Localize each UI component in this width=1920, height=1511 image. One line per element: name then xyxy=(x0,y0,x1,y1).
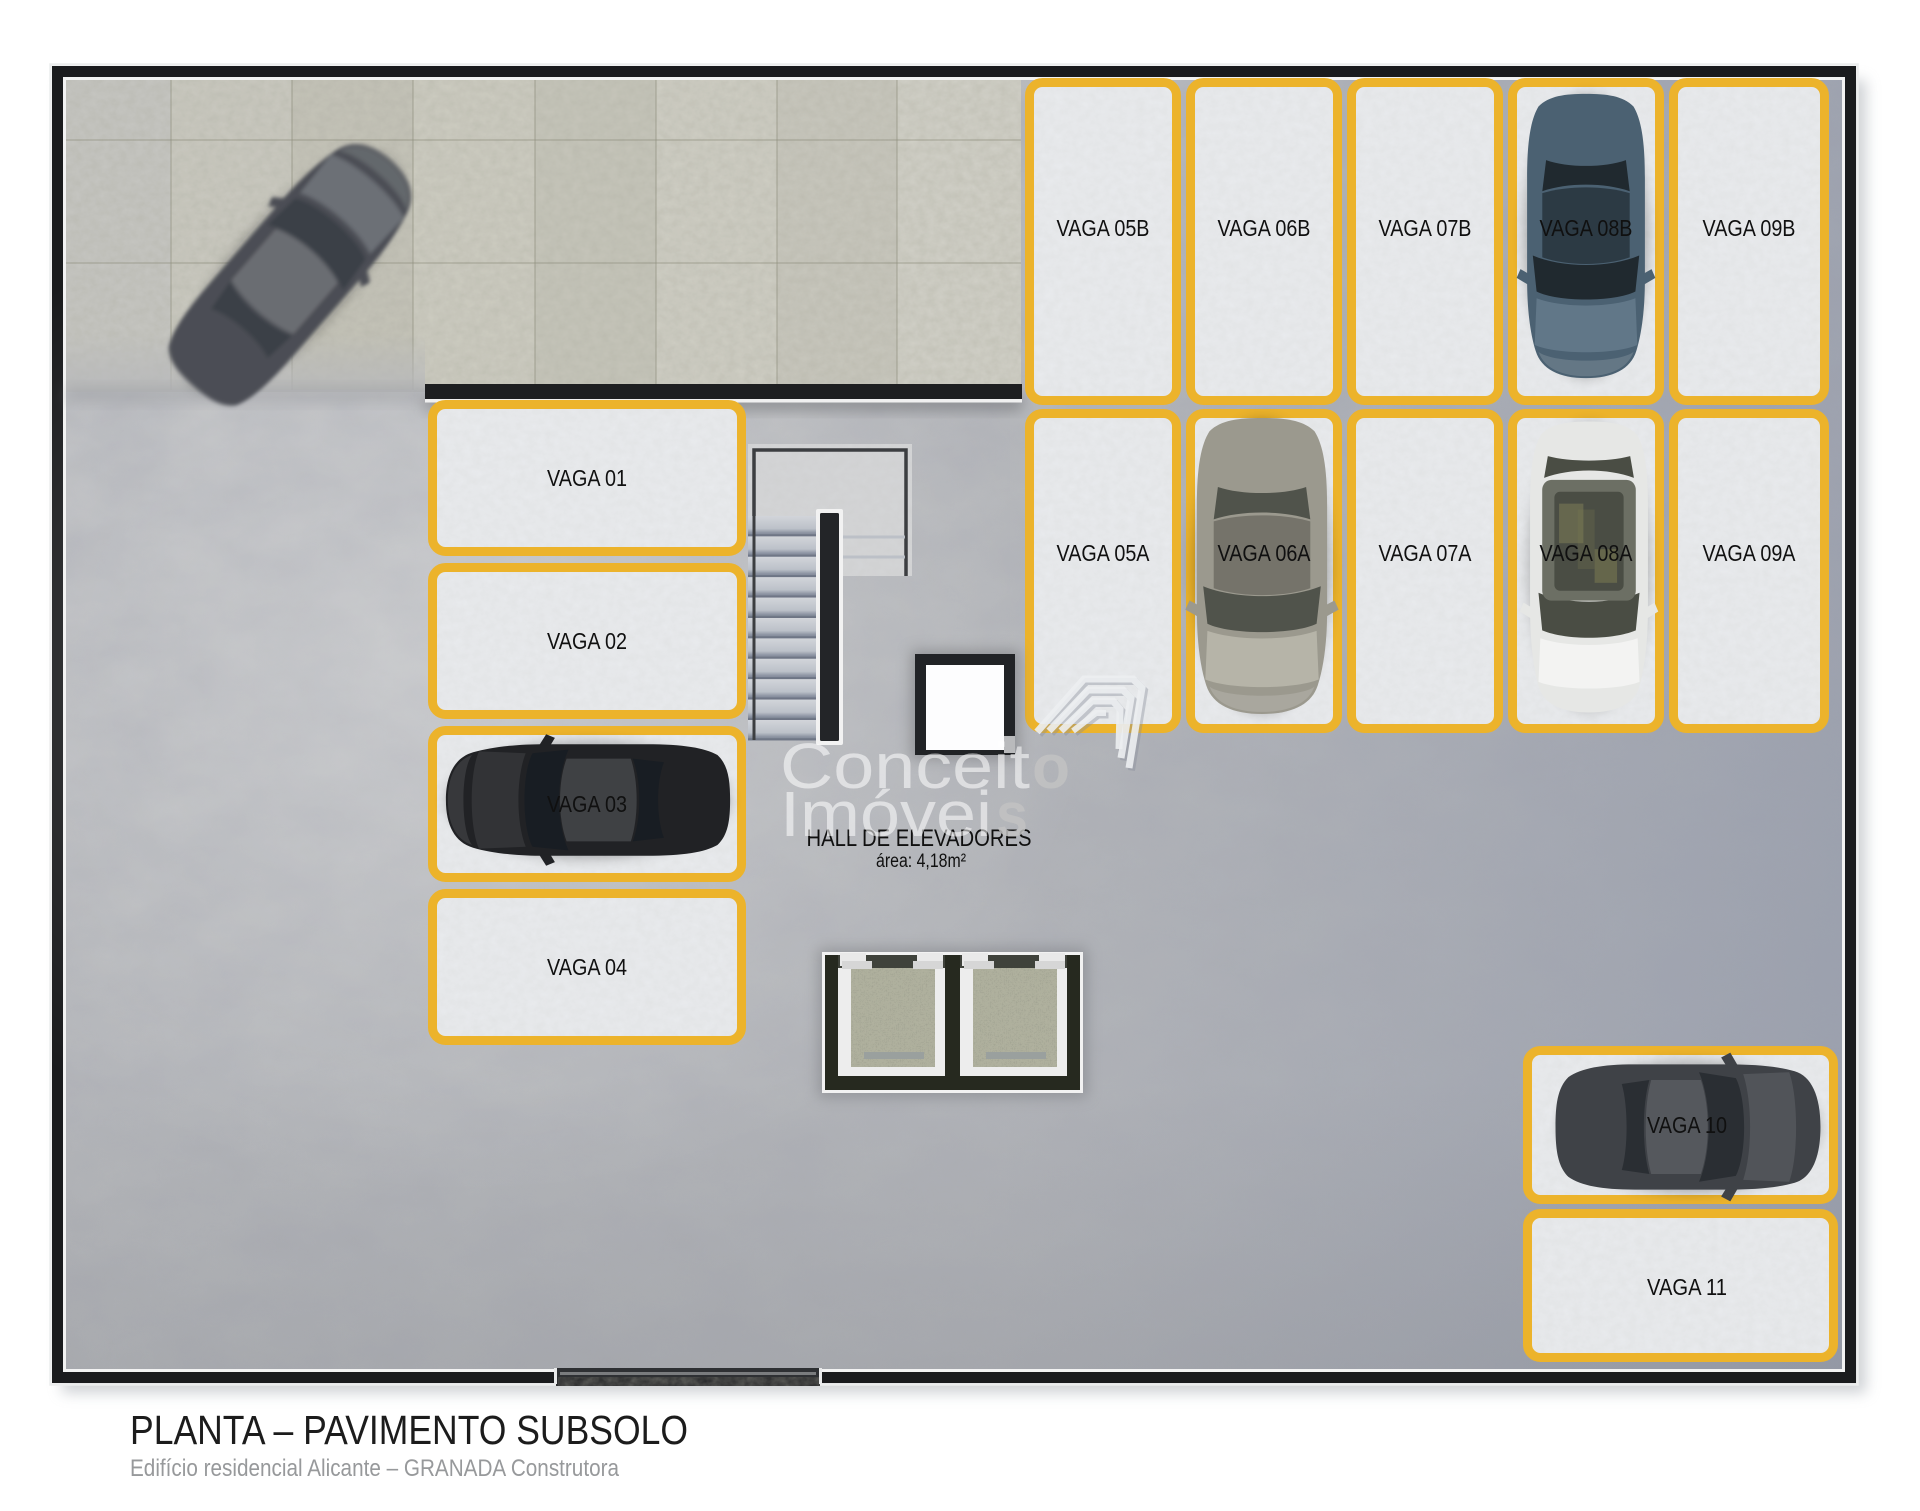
svg-text:VAGA 10: VAGA 10 xyxy=(1647,1112,1727,1138)
svg-text:VAGA 03: VAGA 03 xyxy=(547,791,627,817)
svg-text:VAGA 06A: VAGA 06A xyxy=(1218,540,1312,566)
svg-text:Imóvei: Imóvei xyxy=(780,778,992,850)
svg-text:VAGA 09A: VAGA 09A xyxy=(1703,540,1797,566)
svg-text:VAGA 06B: VAGA 06B xyxy=(1218,215,1311,241)
svg-text:VAGA 07A: VAGA 07A xyxy=(1379,540,1473,566)
svg-text:VAGA 04: VAGA 04 xyxy=(547,954,627,980)
svg-text:VAGA 01: VAGA 01 xyxy=(547,465,627,491)
svg-text:PLANTA – PAVIMENTO SUBSOLO: PLANTA – PAVIMENTO SUBSOLO xyxy=(130,1407,688,1453)
svg-text:VAGA 05A: VAGA 05A xyxy=(1057,540,1151,566)
svg-text:área: 4,18m²: área: 4,18m² xyxy=(876,851,966,872)
svg-text:s: s xyxy=(996,781,1028,850)
svg-text:VAGA 02: VAGA 02 xyxy=(547,628,627,654)
svg-text:o: o xyxy=(1032,733,1070,802)
svg-text:VAGA 05B: VAGA 05B xyxy=(1057,215,1150,241)
svg-text:VAGA 08B: VAGA 08B xyxy=(1540,215,1633,241)
svg-text:VAGA 08A: VAGA 08A xyxy=(1540,540,1634,566)
svg-text:Edifício residencial Alicante: Edifício residencial Alicante – GRANADA … xyxy=(130,1455,620,1482)
svg-text:VAGA 11: VAGA 11 xyxy=(1647,1274,1727,1300)
svg-text:VAGA 07B: VAGA 07B xyxy=(1379,215,1472,241)
svg-text:VAGA 09B: VAGA 09B xyxy=(1703,215,1796,241)
